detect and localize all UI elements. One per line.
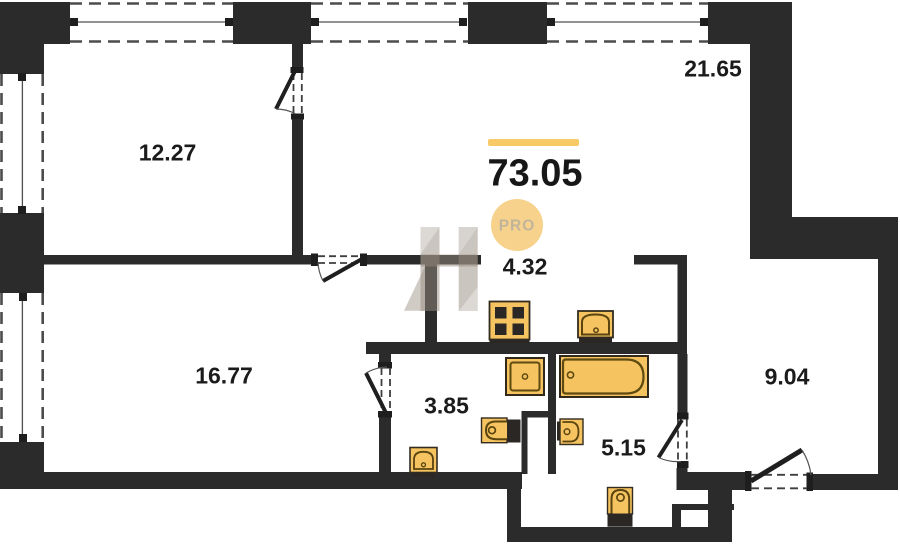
svg-text:9.04: 9.04 <box>765 364 810 390</box>
svg-text:5.15: 5.15 <box>601 435 646 461</box>
svg-text:3.85: 3.85 <box>424 393 469 419</box>
svg-text:12.27: 12.27 <box>139 140 197 166</box>
svg-text:16.77: 16.77 <box>195 363 253 389</box>
svg-text:21.65: 21.65 <box>684 56 742 82</box>
svg-text:73.05: 73.05 <box>487 153 582 195</box>
svg-text:PRO: PRO <box>499 218 536 235</box>
svg-text:4.32: 4.32 <box>503 254 548 280</box>
